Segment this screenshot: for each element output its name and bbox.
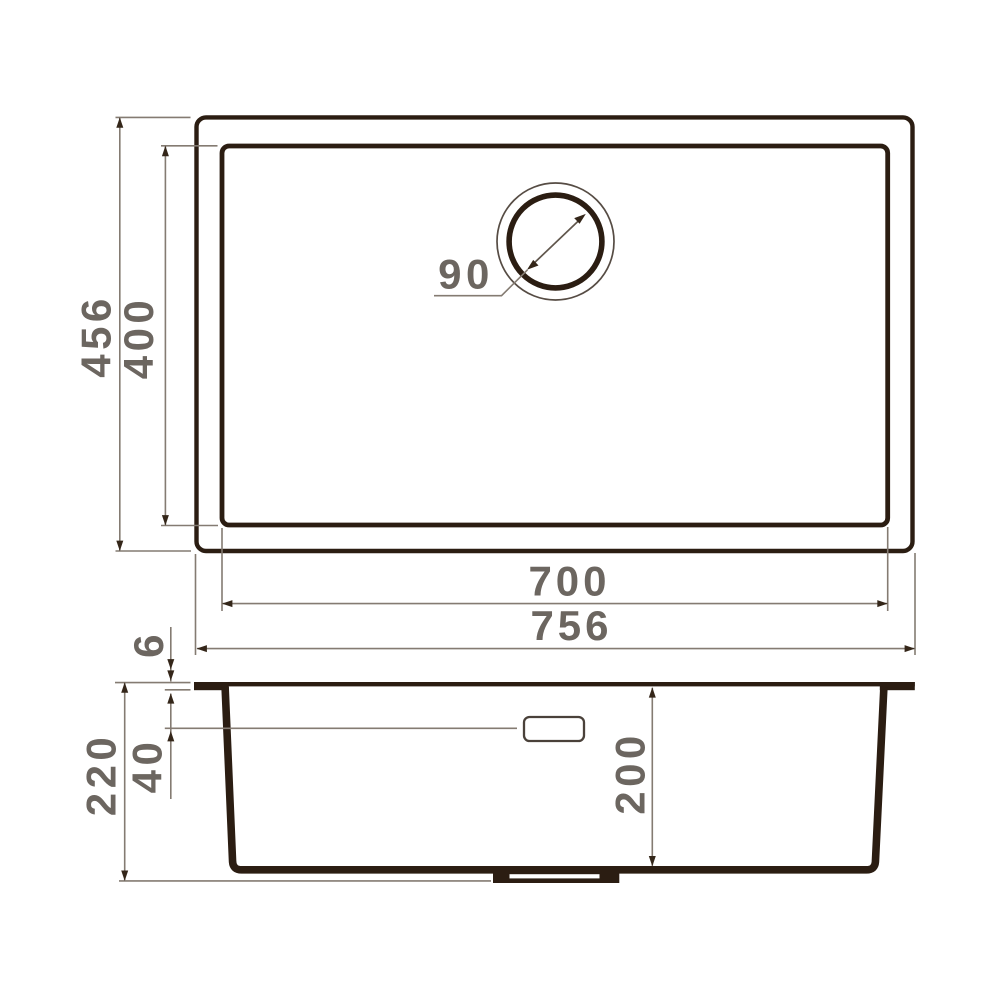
svg-text:90: 90: [438, 251, 494, 298]
svg-text:40: 40: [124, 738, 171, 794]
svg-text:400: 400: [115, 296, 162, 380]
svg-text:700: 700: [528, 558, 610, 605]
svg-text:220: 220: [78, 733, 125, 817]
svg-text:200: 200: [607, 731, 654, 815]
svg-text:456: 456: [73, 294, 120, 378]
svg-text:6: 6: [125, 630, 172, 658]
svg-text:756: 756: [530, 602, 612, 649]
